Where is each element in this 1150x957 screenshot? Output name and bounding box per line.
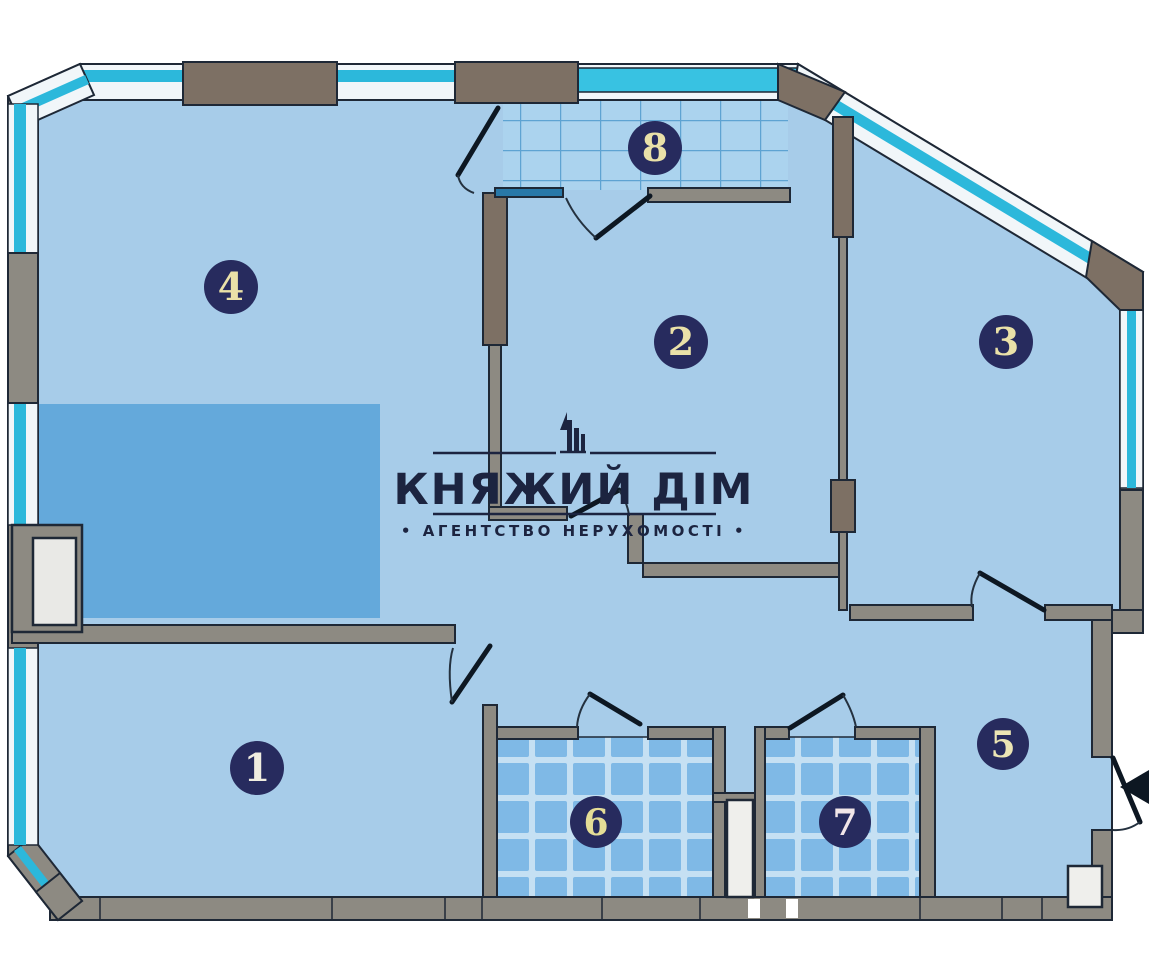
wall-r6-right xyxy=(713,727,725,897)
shaft-bottom-right xyxy=(1068,866,1102,907)
room-6-number: 6 xyxy=(583,802,608,844)
wall-right-step xyxy=(1112,610,1143,633)
room-3: 3 xyxy=(979,315,1033,369)
left-niche-panel xyxy=(33,538,76,625)
room-4-accent-zone xyxy=(35,404,380,618)
wall-r4-r2-pier xyxy=(483,193,507,345)
balcony-wall-right xyxy=(648,188,790,202)
floor-plan-page: 4 8 2 3 1 6 7 5 xyxy=(0,0,1150,957)
wall-r7-right xyxy=(920,727,935,897)
pier-left-mid xyxy=(8,253,38,403)
brand-building-block xyxy=(574,428,579,452)
wall-right-lower-a xyxy=(1092,620,1112,757)
wall-r6-top-right xyxy=(648,727,713,739)
wall-r7-top-left xyxy=(765,727,789,739)
window-left-1-glass xyxy=(14,104,26,253)
wall-r2-r3-thin2 xyxy=(839,532,847,610)
wall-r2-r3-thin xyxy=(839,237,847,480)
pier-right-lower xyxy=(1120,490,1143,610)
wall-vent-gap xyxy=(748,899,760,918)
door-arc xyxy=(1113,822,1140,830)
floor-plan: 4 8 2 3 1 6 7 5 xyxy=(0,0,1150,957)
room-4: 4 xyxy=(204,260,258,314)
room-1-number: 1 xyxy=(244,745,270,790)
wall-vent-gap xyxy=(786,899,798,918)
window-left-2-glass xyxy=(14,403,26,525)
balcony-rail-left xyxy=(495,188,563,197)
window-left-3-glass xyxy=(14,648,26,845)
wall-r2-r3-pier-bottom xyxy=(831,480,855,532)
pier-top-1 xyxy=(183,62,337,105)
wall-r1-hall xyxy=(483,705,497,897)
brand-tagline: • АГЕНТСТВО НЕРУХОМОСТІ • xyxy=(401,522,747,540)
brand-building-tower xyxy=(567,420,572,452)
pier-top-2 xyxy=(455,62,578,103)
wall-bottom xyxy=(50,897,1112,920)
room-7-number: 7 xyxy=(832,802,857,844)
balcony-glazing xyxy=(578,68,798,92)
wall-r3-bottom-left xyxy=(850,605,973,620)
brand-building-block xyxy=(581,434,585,452)
room-3-number: 3 xyxy=(993,319,1019,364)
wall-r2-r3-pier-top xyxy=(833,117,853,237)
room-5: 5 xyxy=(977,718,1029,770)
wall-r6-top-left xyxy=(497,727,578,739)
room-6: 6 xyxy=(570,796,622,848)
room-2: 2 xyxy=(654,315,708,369)
entrance-arrow-icon xyxy=(1120,770,1149,804)
room-2-number: 2 xyxy=(668,319,694,364)
wall-r3-bottom-right xyxy=(1045,605,1112,620)
room-7: 7 xyxy=(819,796,871,848)
room-1: 1 xyxy=(230,741,284,795)
wall-r7-left xyxy=(755,727,765,897)
room-8: 8 xyxy=(628,121,682,175)
wall-hall-top xyxy=(643,563,839,577)
room-5-number: 5 xyxy=(990,724,1015,766)
brand-name: КНЯЖИЙ ДІМ xyxy=(394,464,755,515)
room-4-number: 4 xyxy=(218,264,244,309)
shaft-between-6-7 xyxy=(727,800,753,897)
room-8-number: 8 xyxy=(642,125,668,170)
window-right-glass xyxy=(1127,280,1136,488)
